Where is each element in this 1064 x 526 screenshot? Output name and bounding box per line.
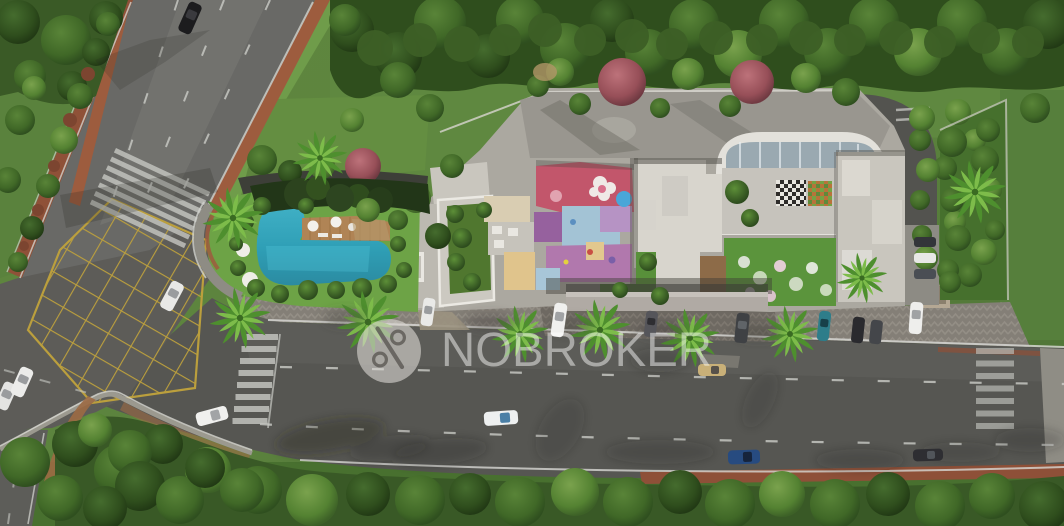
svg-text:NOBROKER: NOBROKER (441, 324, 712, 377)
